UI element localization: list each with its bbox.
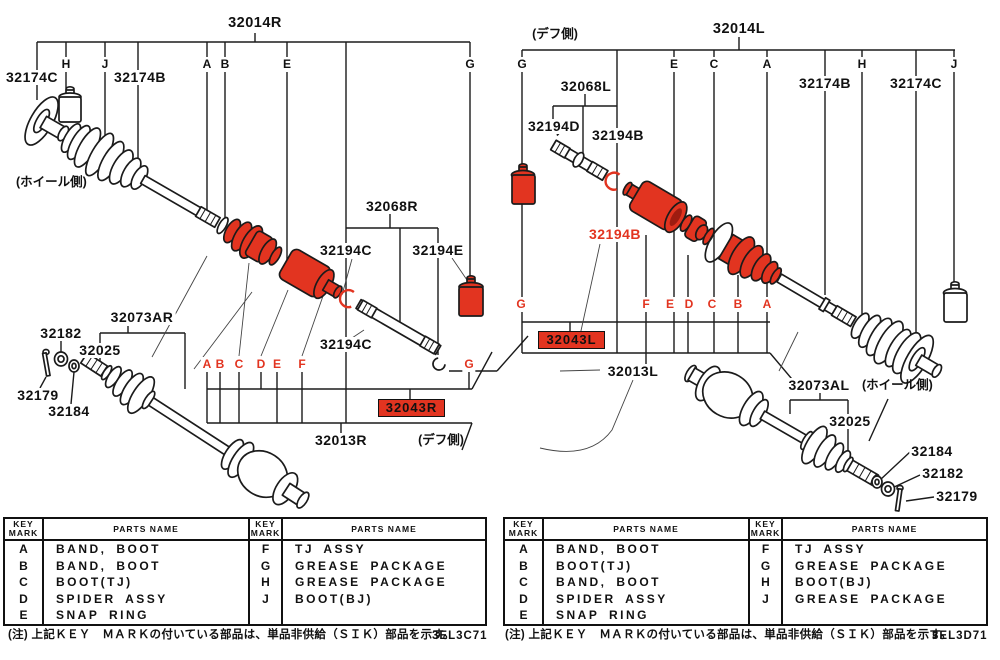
left-top-mark-j: J — [99, 57, 112, 72]
label-32179-right[interactable]: 32179 — [934, 489, 979, 504]
right-red-mark-d: D — [683, 297, 696, 312]
right-red-mark-c: C — [706, 297, 719, 312]
label-32194b-red[interactable]: 32194B — [587, 227, 643, 242]
right-red-mark-g: G — [514, 297, 527, 312]
key-mark-table-right: KEY MARK PARTS NAME KEY MARK PARTS NAME … — [503, 517, 988, 626]
right-red-mark-e: E — [664, 297, 676, 312]
right-top-mark-h: H — [855, 57, 870, 72]
left-assembly-number[interactable]: 32014R — [226, 16, 284, 31]
figure-code-left: 3EL3C71 — [432, 630, 488, 642]
label-32013l[interactable]: 32013L — [606, 364, 660, 379]
selected-part-box-32043l[interactable]: 32043L — [538, 331, 605, 349]
label-32013r[interactable]: 32013R — [313, 433, 369, 448]
table-row: ABAND, BOOTFTJ ASSY — [4, 540, 486, 558]
grease-bottle-H-left — [59, 87, 81, 122]
right-top-mark-g: G — [514, 57, 529, 72]
left-pin-nut-washer — [43, 350, 79, 377]
left-red-mark-c: C — [233, 357, 246, 372]
left-top-mark-e: E — [280, 57, 294, 72]
table-row: DSPIDER ASSYJBOOT(BJ) — [4, 591, 486, 608]
right-washer-nut-pin — [872, 476, 903, 511]
table-row: CBOOT(TJ)HGREASE PACKAGE — [4, 574, 486, 591]
grease-bottle-J-right — [944, 282, 968, 322]
table-row: ESNAP RING — [4, 607, 486, 625]
right-diff-side-label: (デフ側) — [530, 27, 580, 42]
label-32182-left[interactable]: 32182 — [38, 326, 83, 341]
figure-code-right: 3EL3D71 — [932, 630, 988, 642]
th-parts-name: PARTS NAME — [43, 518, 249, 540]
label-32194e[interactable]: 32194E — [410, 243, 465, 258]
th-key-mark: KEY MARK — [4, 518, 43, 540]
right-red-mark-a: A — [761, 297, 774, 312]
label-32184-right[interactable]: 32184 — [909, 444, 954, 459]
right-top-mark-a: A — [760, 57, 775, 72]
left-red-mark-e: E — [271, 357, 283, 372]
right-red-mark-b: B — [732, 297, 745, 312]
th-key-mark: KEY MARK — [749, 518, 782, 540]
grease-bottle-G-left-red — [459, 276, 483, 316]
label-32073ar[interactable]: 32073AR — [109, 310, 176, 325]
right-top-mark-e: E — [667, 57, 681, 72]
table-row: DSPIDER ASSYJGREASE PACKAGE — [504, 591, 987, 608]
th-key-mark: KEY MARK — [504, 518, 543, 540]
left-red-mark-g: G — [462, 357, 475, 372]
label-32025-right[interactable]: 32025 — [827, 414, 872, 429]
label-32194c-upper[interactable]: 32194C — [318, 243, 374, 258]
label-32174c-right[interactable]: 32174C — [888, 76, 944, 91]
left-top-mark-a: A — [200, 57, 215, 72]
selected-part-box-32043r[interactable]: 32043R — [378, 399, 445, 417]
left-red-mark-f: F — [296, 357, 307, 372]
right-red-mark-f: F — [640, 297, 651, 312]
sik-note-right: (注) 上記ＫＥＹ ＭＡＲＫの付いている部品は、単品非供給（ＳＩＫ）部品を示す。 — [505, 626, 952, 642]
right-driveshaft-main — [528, 115, 953, 396]
right-top-mark-c: C — [707, 57, 722, 72]
label-32174c-left[interactable]: 32174C — [4, 70, 60, 85]
label-32179-left[interactable]: 32179 — [15, 388, 60, 403]
right-wheel-side-label: (ホイール側) — [860, 378, 935, 393]
label-32184-left[interactable]: 32184 — [46, 404, 91, 419]
th-parts-name: PARTS NAME — [782, 518, 987, 540]
label-32194c-lower[interactable]: 32194C — [318, 337, 374, 352]
left-red-mark-b: B — [214, 357, 227, 372]
grease-bottle-G-right-red — [512, 164, 536, 204]
label-32073al[interactable]: 32073AL — [786, 378, 851, 393]
key-mark-table-left: KEY MARK PARTS NAME KEY MARK PARTS NAME … — [3, 517, 487, 626]
label-32194b-top[interactable]: 32194B — [590, 128, 646, 143]
label-32068l[interactable]: 32068L — [559, 79, 613, 94]
sik-note-left: (注) 上記ＫＥＹ ＭＡＲＫの付いている部品は、単品非供給（ＳＩＫ）部品を示す。 — [8, 626, 455, 642]
left-top-mark-g: G — [462, 57, 477, 72]
table-row: BBAND, BOOTGGREASE PACKAGE — [4, 558, 486, 575]
left-top-mark-h: H — [59, 57, 74, 72]
left-red-mark-a: A — [201, 357, 214, 372]
table-row: ABAND, BOOTFTJ ASSY — [504, 540, 987, 558]
label-32068r[interactable]: 32068R — [364, 199, 420, 214]
right-top-mark-j: J — [948, 57, 961, 72]
left-wheel-side-label: (ホイール側) — [14, 175, 89, 190]
right-assembly-number[interactable]: 32014L — [711, 22, 767, 37]
table-row: CBAND, BOOTHBOOT(BJ) — [504, 574, 987, 591]
label-32194d[interactable]: 32194D — [526, 119, 582, 134]
table-row: BBOOT(TJ)GGREASE PACKAGE — [504, 558, 987, 575]
left-diff-side-label: (デフ側) — [416, 433, 466, 448]
label-32174b-right[interactable]: 32174B — [797, 76, 853, 91]
parts-catalog-page: 32014R H J A B E G 32174C 32174B (ホイール側)… — [0, 0, 1000, 660]
th-key-mark: KEY MARK — [249, 518, 282, 540]
label-32025-left[interactable]: 32025 — [77, 343, 122, 358]
th-parts-name: PARTS NAME — [543, 518, 749, 540]
table-row: ESNAP RING — [504, 607, 987, 625]
label-32182-right[interactable]: 32182 — [920, 466, 965, 481]
left-red-mark-d: D — [255, 357, 268, 372]
label-32174b-left[interactable]: 32174B — [112, 70, 168, 85]
th-parts-name: PARTS NAME — [282, 518, 486, 540]
left-top-mark-b: B — [218, 57, 233, 72]
